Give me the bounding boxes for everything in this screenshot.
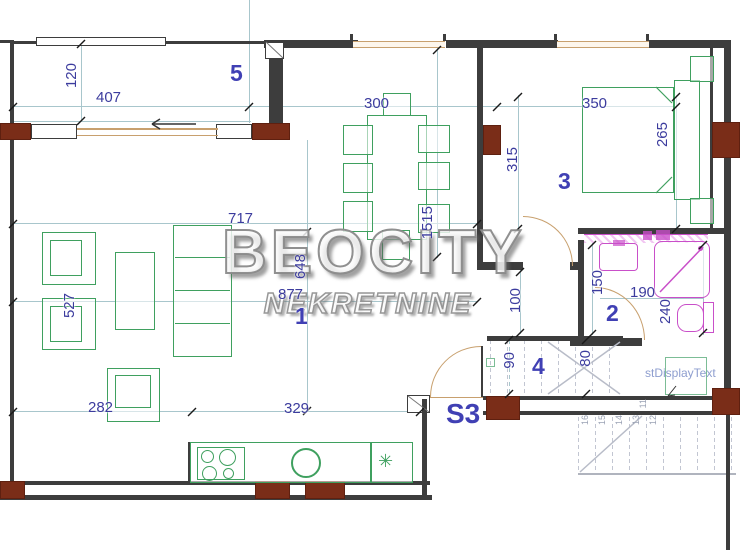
dimension-80: 80 <box>578 350 593 367</box>
dimension-717: 717 <box>228 211 253 226</box>
dimension-648: 648 <box>293 254 308 279</box>
annotation-text: stDisplayText <box>645 366 716 380</box>
dimension-329: 329 <box>284 401 309 416</box>
room-label-3: 3 <box>558 170 571 193</box>
stair-step-number: 13 <box>632 415 641 425</box>
dimension-350: 350 <box>582 96 607 111</box>
dimension-100: 100 <box>508 288 523 313</box>
room-label-5: 5 <box>230 62 243 85</box>
dimension-282: 282 <box>88 400 113 415</box>
dimension-315: 315 <box>505 147 520 172</box>
stair-step-number: 15 <box>598 415 607 425</box>
floor-plan: ✳ <box>0 0 740 550</box>
stair-step-number: 12 <box>649 415 658 425</box>
dimension-407: 407 <box>96 90 121 105</box>
room-label-1: 1 <box>295 305 308 328</box>
room-label-2: 2 <box>606 302 619 325</box>
dimension-1515: 1515 <box>420 206 435 239</box>
dimension-190: 190 <box>630 285 655 300</box>
dimension-90: 90 <box>502 352 517 369</box>
dimension-265: 265 <box>655 122 670 147</box>
stair-step-number: 14 <box>615 415 624 425</box>
dimension-527: 527 <box>62 293 77 318</box>
dimension-300: 300 <box>364 96 389 111</box>
room-label-4: 4 <box>532 355 545 378</box>
stair-step-number: 11 <box>639 399 648 408</box>
stair-step-number: 16 <box>581 415 590 425</box>
labels-layer: 51324S3407120300350315265717151564887752… <box>0 0 740 550</box>
dimension-150: 150 <box>590 270 605 295</box>
dimension-877: 877 <box>278 287 303 302</box>
dimension-240: 240 <box>658 299 673 324</box>
dimension-120: 120 <box>64 63 79 88</box>
room-label-S3: S3 <box>446 400 480 428</box>
